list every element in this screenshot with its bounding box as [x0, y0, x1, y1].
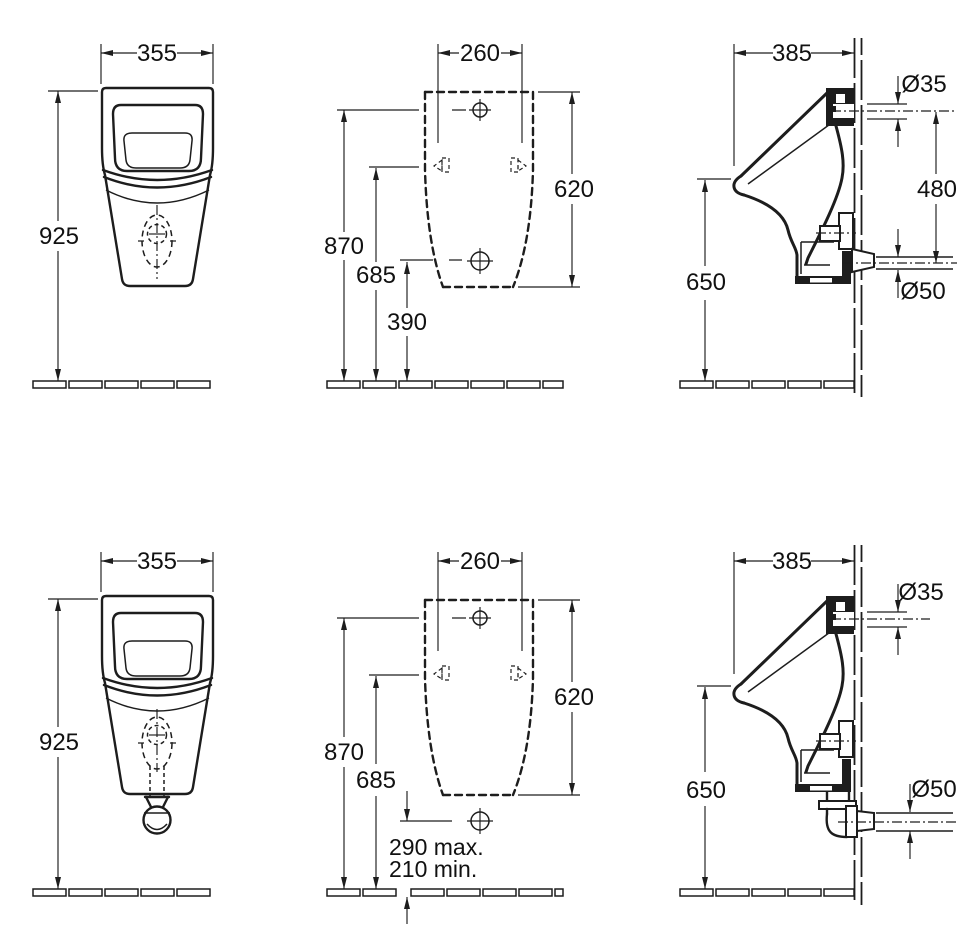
dim-width-front-top: 355 [101, 40, 213, 84]
dim-label-870-top: 870 [324, 233, 364, 260]
panel-template-bottom: 260 620 870 685 290 max. 210 min. [324, 548, 594, 924]
outlet-fitting-block [839, 721, 853, 757]
template-outline-bottom [425, 600, 533, 795]
floor-hatch [327, 381, 563, 388]
dim-label-650-top: 650 [686, 269, 726, 296]
dim-outlet-height-bottom: 290 max. 210 min. [389, 791, 484, 924]
outlet-fitting-block [839, 213, 853, 249]
panel-front-bottom: 355 925 [33, 548, 213, 896]
dim-outlet-dia-top: Ø50 [898, 229, 946, 305]
template-outline-top [425, 92, 533, 287]
dim-label-390-top: 390 [387, 309, 427, 336]
dim-label-width-template-top: 260 [460, 40, 500, 67]
dim-inlet-dia-top: Ø35 [867, 71, 947, 147]
urinal-dimension-drawing: 355 925 260 620 870 [0, 0, 980, 938]
urinal-side-section [734, 88, 856, 284]
dim-label-outlet-min: 210 min. [389, 856, 477, 882]
dim-620-top: 620 [518, 92, 594, 287]
dim-label-depth-bottom: 385 [772, 548, 812, 575]
dim-label-width-template-bottom: 260 [460, 548, 500, 575]
dim-label-outlet-dia-bottom: Ø50 [911, 776, 956, 803]
dim-620-bottom: 620 [518, 600, 594, 795]
panel-front-top: 355 925 [33, 40, 213, 388]
dim-label-685-top: 685 [356, 262, 396, 289]
urinal-side-section [734, 596, 856, 792]
outlet-marking-front-bottom [138, 709, 176, 797]
dim-label-height-front-top: 925 [39, 223, 79, 250]
dim-390-top: 390 [387, 260, 462, 381]
dim-label-480-top: 480 [917, 176, 957, 203]
outlet-marking-front-top [138, 205, 176, 279]
floor-hatch [33, 381, 210, 388]
dim-label-width-front-bottom: 355 [137, 548, 177, 575]
wall-section [855, 38, 862, 397]
panel-side-bottom: 385 Ø35 Ø50 650 [680, 545, 957, 905]
outlet-pipe-top [843, 249, 957, 272]
floor-hatch [680, 889, 854, 896]
dim-label-620-top: 620 [554, 176, 594, 203]
dim-label-depth-top: 385 [772, 40, 812, 67]
mounting-holes-top [467, 99, 493, 274]
dim-outlet-dia-bottom: Ø50 [910, 776, 957, 859]
urinal-front-outline [102, 88, 213, 286]
panel-template-top: 260 620 870 685 390 [324, 40, 594, 388]
dim-870-top: 870 [324, 110, 466, 381]
wall-section [855, 545, 862, 905]
dim-label-870-bottom: 870 [324, 739, 364, 766]
floor-hatch [33, 889, 210, 896]
dim-label-685-bottom: 685 [356, 767, 396, 794]
dim-label-height-front-bottom: 925 [39, 729, 79, 756]
siphon-trap [144, 797, 171, 834]
floor-hatch [680, 381, 854, 388]
dim-label-650-bottom: 650 [686, 777, 726, 804]
dim-height-front-bottom: 925 [39, 599, 98, 889]
drawing-sheet: 355 925 260 620 870 [0, 0, 980, 938]
dim-width-front-bottom: 355 [101, 548, 213, 592]
mounting-holes-bottom [467, 607, 493, 834]
dim-480-top: 480 [917, 112, 957, 263]
panel-side-top: 385 Ø35 480 Ø50 650 [680, 38, 957, 397]
dim-height-front-top: 925 [39, 91, 98, 381]
dim-label-inlet-dia-top: Ø35 [901, 71, 946, 98]
dim-650-bottom: 650 [686, 686, 731, 889]
floor-hatch [327, 889, 563, 896]
dim-label-inlet-dia-bottom: Ø35 [898, 579, 943, 606]
dim-label-outlet-dia-top: Ø50 [900, 278, 945, 305]
dim-inlet-dia-bottom: Ø35 [867, 579, 944, 655]
dim-685-top: 685 [356, 167, 419, 381]
dim-label-620-bottom: 620 [554, 684, 594, 711]
dim-label-width-front-top: 355 [137, 40, 177, 67]
fixing-bracket-icons-top [434, 158, 526, 172]
fixing-bracket-icons-bottom [434, 666, 526, 680]
dim-650-top: 650 [686, 179, 731, 381]
